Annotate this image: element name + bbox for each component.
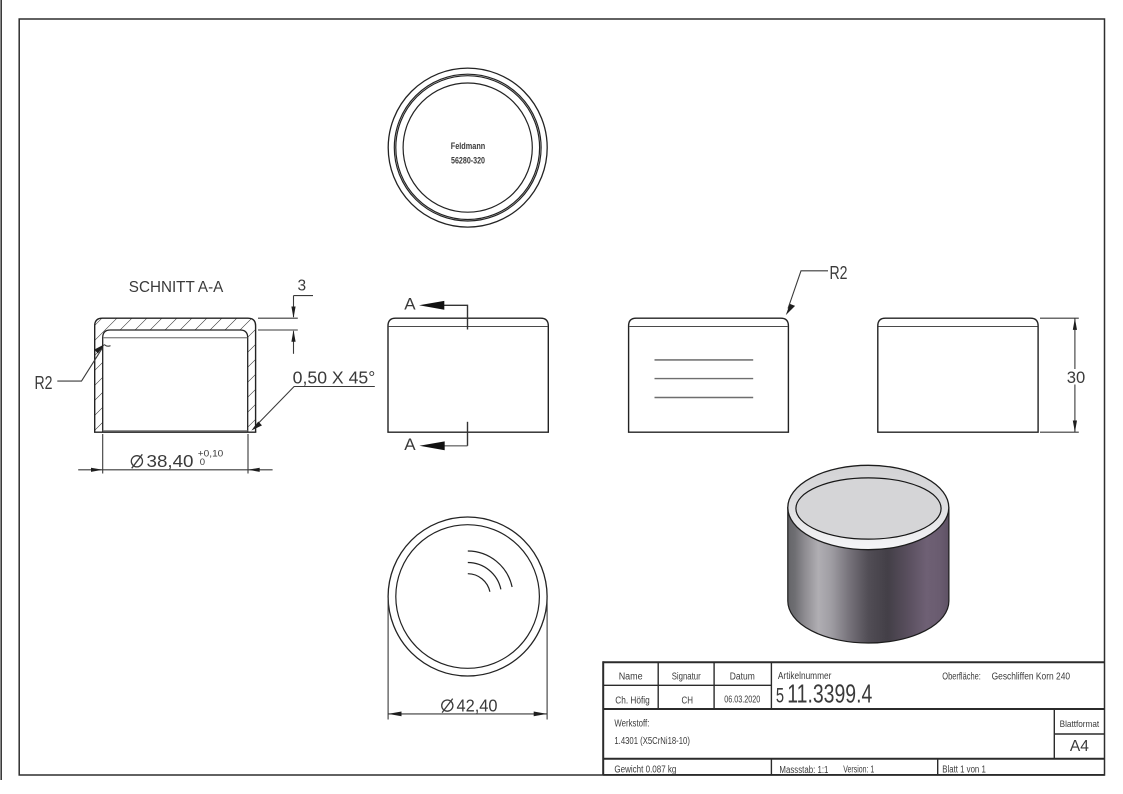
svg-text:0,50 X 45°: 0,50 X 45° bbox=[293, 367, 376, 387]
svg-text:R2: R2 bbox=[830, 263, 848, 283]
svg-text:Datum: Datum bbox=[730, 671, 755, 682]
svg-text:38,40: 38,40 bbox=[147, 451, 194, 471]
svg-text:A: A bbox=[404, 435, 416, 454]
svg-text:R2: R2 bbox=[35, 373, 53, 393]
svg-text:56280-320: 56280-320 bbox=[451, 155, 485, 165]
svg-text:0: 0 bbox=[200, 457, 205, 468]
svg-text:A: A bbox=[404, 294, 416, 313]
svg-text:Blatt 1 von 1: Blatt 1 von 1 bbox=[942, 765, 986, 776]
svg-text:Name: Name bbox=[619, 671, 643, 682]
svg-text:Signatur: Signatur bbox=[672, 672, 702, 683]
svg-text:42,40: 42,40 bbox=[457, 696, 498, 716]
svg-text:3: 3 bbox=[298, 277, 307, 294]
svg-text:30: 30 bbox=[1067, 368, 1086, 387]
svg-text:Werkstoff:: Werkstoff: bbox=[614, 718, 649, 729]
svg-text:5: 5 bbox=[776, 685, 784, 708]
svg-text:Massstab: 1:1: Massstab: 1:1 bbox=[779, 765, 828, 776]
svg-text:Blattformat: Blattformat bbox=[1060, 719, 1100, 730]
svg-text:CH: CH bbox=[682, 695, 694, 706]
svg-text:1.4301 (X5CrNi18-10): 1.4301 (X5CrNi18-10) bbox=[614, 736, 690, 747]
svg-text:Feldmann: Feldmann bbox=[451, 141, 486, 151]
svg-text:SCHNITT A-A: SCHNITT A-A bbox=[129, 279, 224, 296]
svg-text:Ch. Höfig: Ch. Höfig bbox=[615, 696, 650, 707]
svg-text:06.03.2020: 06.03.2020 bbox=[724, 695, 760, 706]
svg-text:A4: A4 bbox=[1070, 738, 1089, 755]
svg-text:Gewicht 0.087 kg: Gewicht 0.087 kg bbox=[614, 764, 676, 775]
svg-text:Geschliffen Korn 240: Geschliffen Korn 240 bbox=[992, 672, 1071, 683]
svg-text:Version: 1: Version: 1 bbox=[843, 765, 874, 776]
svg-text:11.3399.4: 11.3399.4 bbox=[787, 679, 872, 709]
svg-text:Oberfläche:: Oberfläche: bbox=[942, 672, 981, 683]
